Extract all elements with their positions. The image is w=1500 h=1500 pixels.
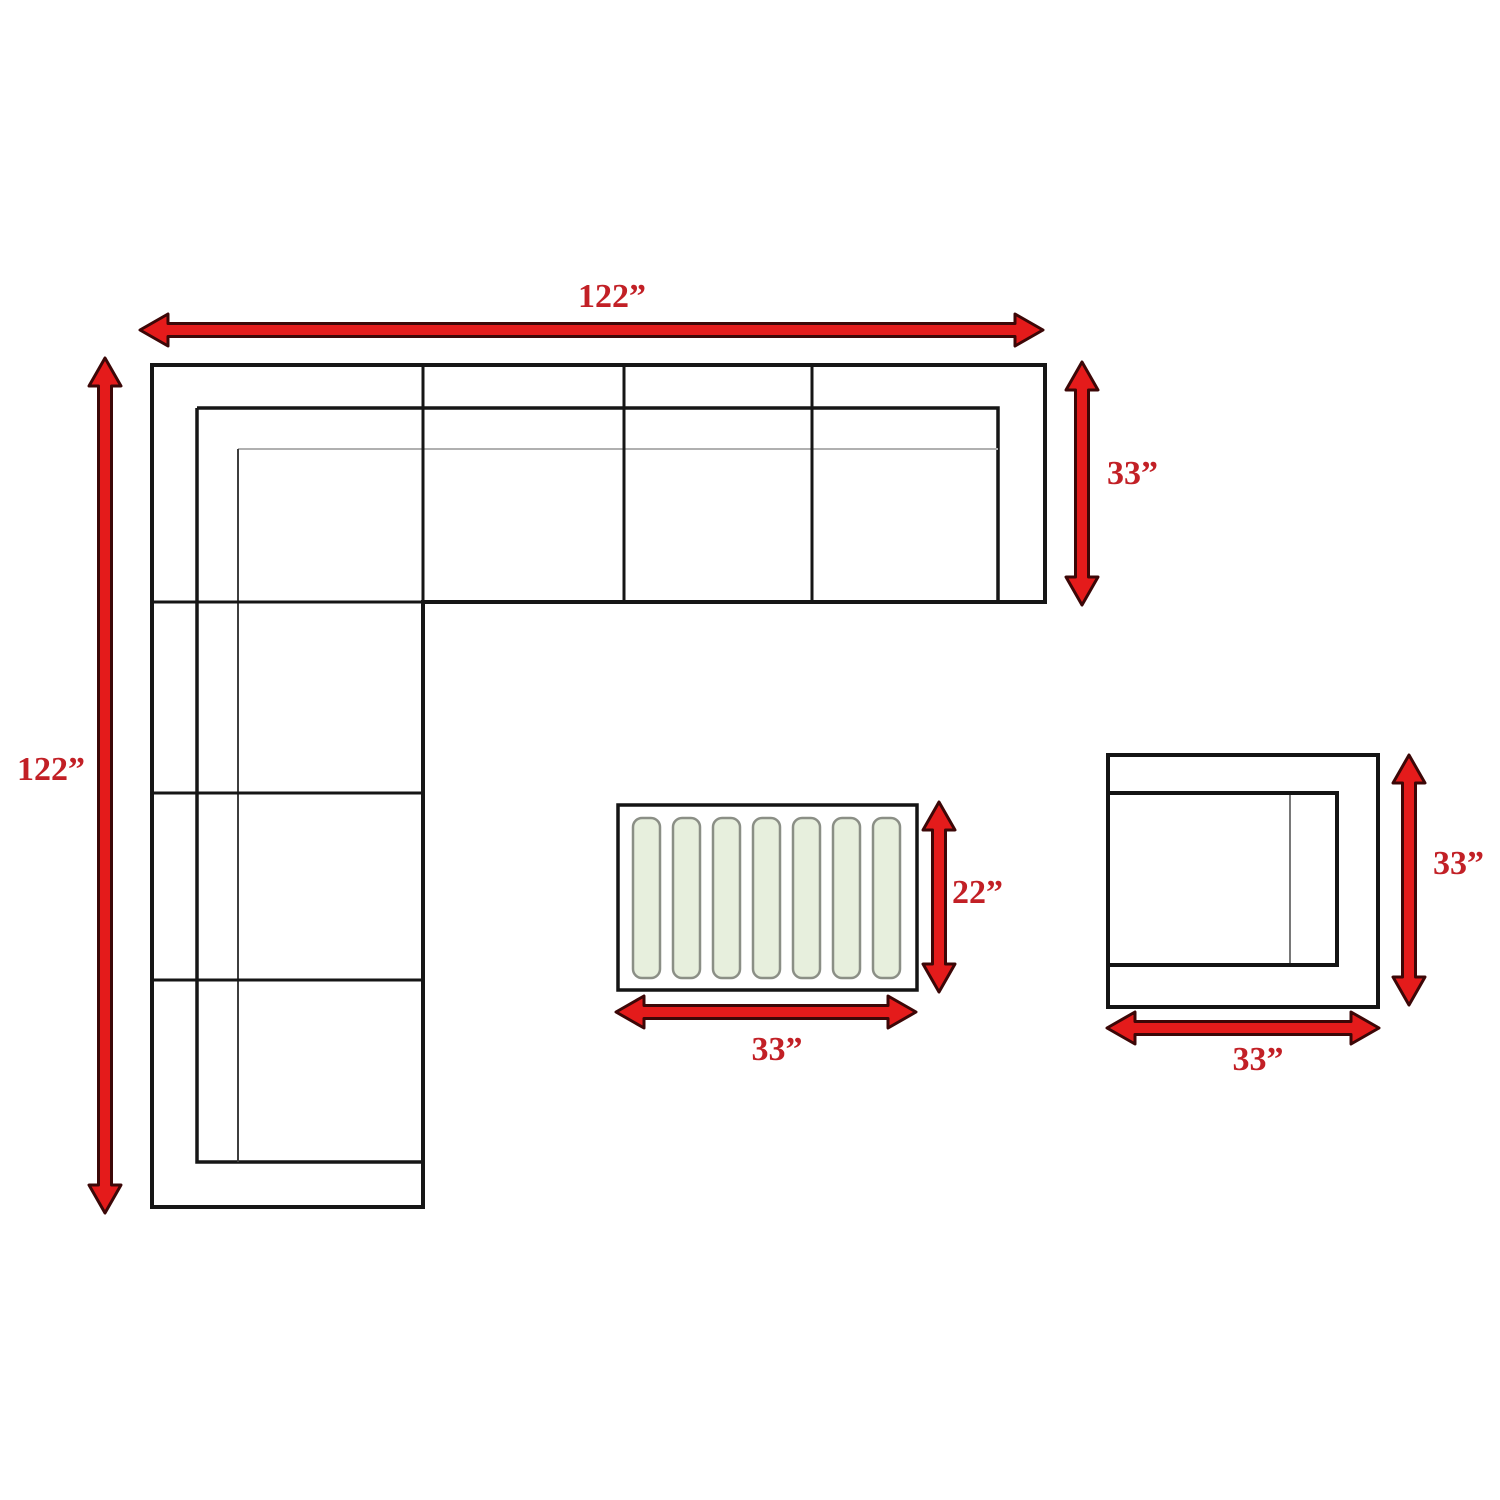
sofa-depth-label: 33” (1107, 455, 1158, 492)
table-depth-label: 22” (952, 874, 1003, 911)
table-slat-3 (713, 818, 740, 978)
sofa-height-label: 122” (17, 751, 85, 788)
table-slat-4 (753, 818, 780, 978)
chair-depth-label: 33” (1433, 845, 1484, 882)
corner-chair (1108, 755, 1378, 1007)
chair-width-label: 33” (1233, 1041, 1284, 1078)
diagram-svg: 122” 122” 33” 22” 33” 33” 33” (0, 0, 1500, 1500)
furniture-dimension-diagram: 122” 122” 33” 22” 33” 33” 33” (0, 0, 1500, 1500)
table-slat-2 (673, 818, 700, 978)
sofa-width-label: 122” (578, 278, 646, 315)
table-slat-7 (873, 818, 900, 978)
sofa-height-arrow (89, 358, 121, 1213)
table-slat-6 (833, 818, 860, 978)
table-depth-arrow (923, 802, 955, 992)
chair-width-arrow (1107, 1012, 1379, 1044)
sofa-depth-arrow (1066, 362, 1098, 605)
sofa-width-arrow (140, 314, 1043, 346)
table-width-label: 33” (752, 1031, 803, 1068)
chair-depth-arrow (1393, 755, 1425, 1005)
table-slat-5 (793, 818, 820, 978)
sectional-sofa (152, 365, 1045, 1207)
table-slat-1 (633, 818, 660, 978)
sofa-outer-outline (152, 365, 1045, 1207)
coffee-table (618, 805, 917, 990)
table-width-arrow (616, 996, 916, 1028)
